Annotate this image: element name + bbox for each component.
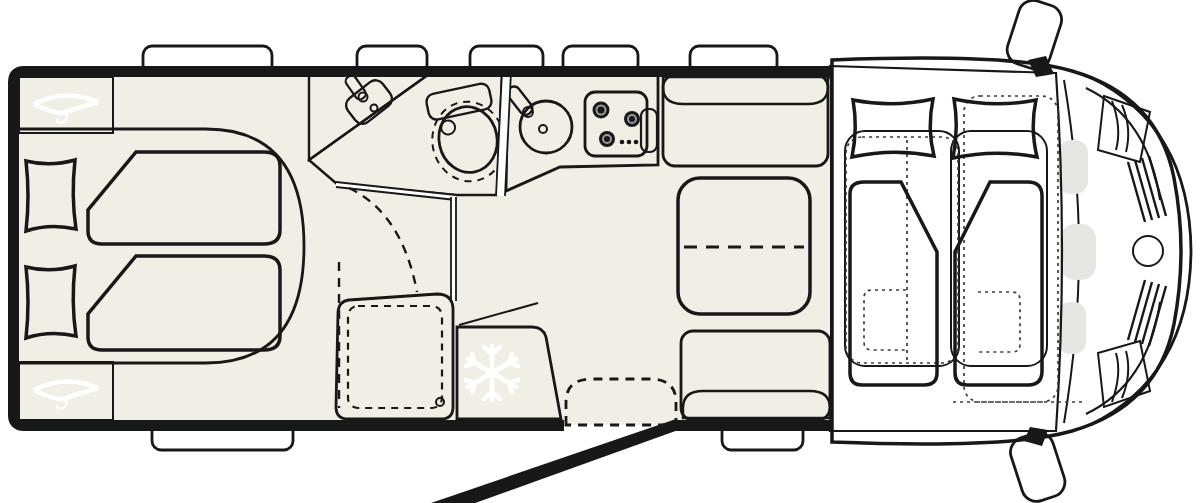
window-reflection-line bbox=[1112, 101, 1128, 152]
entry-door-leaf bbox=[431, 419, 681, 503]
bed-section-outline-left bbox=[845, 131, 959, 366]
dashboard-panel bbox=[1060, 224, 1096, 280]
cab-seat-armrest-right bbox=[978, 292, 1020, 352]
bed-section-outline-right bbox=[951, 131, 1047, 366]
cab-side-window-bottom bbox=[1098, 341, 1150, 407]
window-reflection-line bbox=[1112, 351, 1128, 402]
side-mirror-bottom bbox=[1007, 427, 1069, 503]
duvet bbox=[955, 182, 1042, 385]
duvet bbox=[850, 182, 937, 385]
cab-side-window-top bbox=[1098, 96, 1150, 162]
cab-section bbox=[830, 58, 1191, 444]
drop-down-bed-area bbox=[830, 66, 1062, 431]
front-bumper-line bbox=[1090, 77, 1191, 425]
hob-knobs bbox=[620, 140, 639, 145]
door-opening bbox=[564, 412, 676, 425]
grille-slats-upper bbox=[1128, 156, 1166, 222]
pillow bbox=[953, 99, 1037, 158]
cab-seat-armrest-left bbox=[864, 290, 906, 350]
grille-slats-lower bbox=[1128, 280, 1166, 346]
hob-burner bbox=[599, 131, 615, 147]
hob-burner bbox=[593, 102, 610, 119]
motorhome-floorplan bbox=[0, 0, 1200, 503]
pillow bbox=[852, 99, 934, 157]
floorplan-canvas bbox=[0, 0, 1200, 503]
cab-seat-outline-left bbox=[846, 137, 958, 363]
hob-burner bbox=[624, 111, 640, 127]
dashboard-panel bbox=[1058, 140, 1088, 194]
brand-logo bbox=[1133, 236, 1163, 266]
